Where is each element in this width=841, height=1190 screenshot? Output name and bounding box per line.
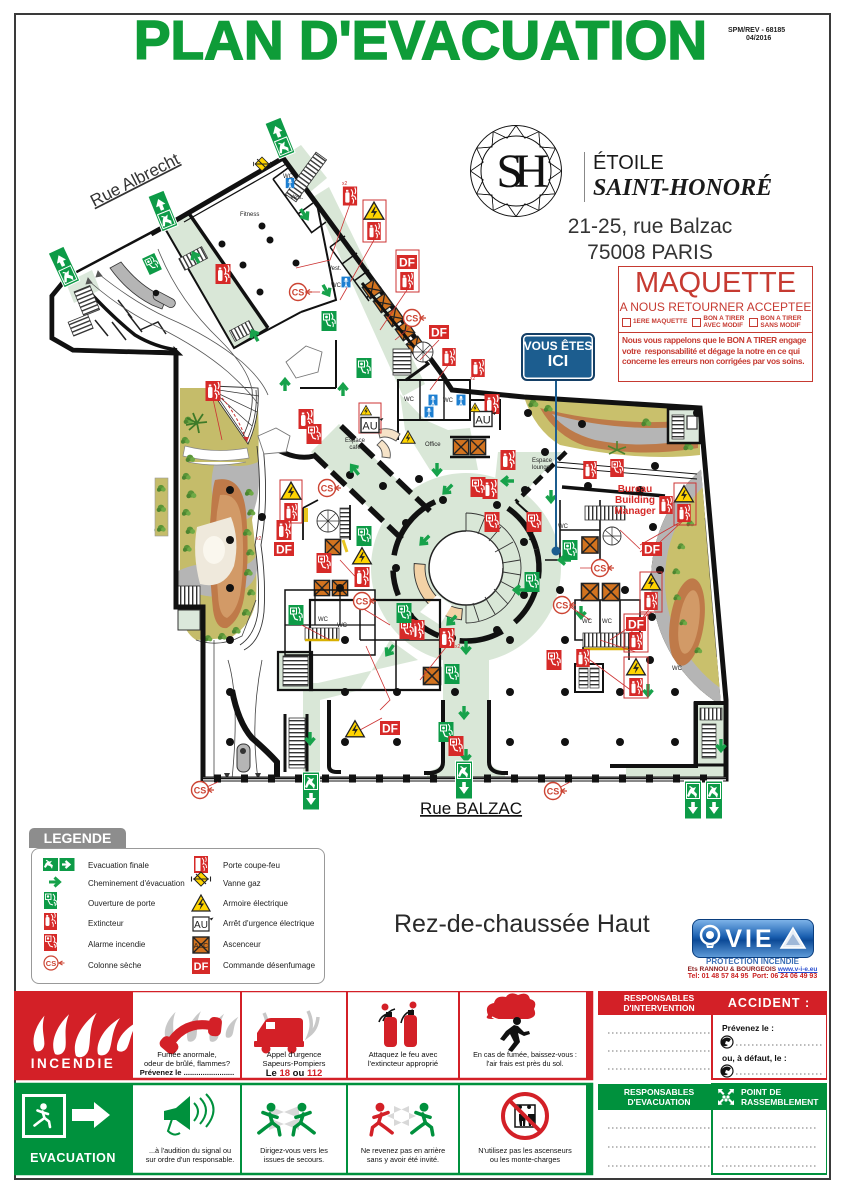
svg-text:WC: WC <box>337 623 348 629</box>
svg-text:issues de secours.: issues de secours. <box>264 1155 324 1164</box>
svg-text:Commande désenfumage: Commande désenfumage <box>223 961 316 970</box>
svg-text:Rue BALZAC: Rue BALZAC <box>420 799 522 818</box>
svg-text:ou, à défaut, le :: ou, à défaut, le : <box>722 1053 787 1063</box>
svg-text:l'air frais est près du sol.: l'air frais est près du sol. <box>486 1059 563 1068</box>
svg-text:odeur de brûlé, flammes?: odeur de brûlé, flammes? <box>144 1059 230 1068</box>
svg-text:Fumée anormale,: Fumée anormale, <box>157 1050 217 1059</box>
svg-text:D'INTERVENTION: D'INTERVENTION <box>623 1003 694 1013</box>
svg-text:ASC: ASC <box>194 943 208 950</box>
svg-text:DF: DF <box>194 961 209 973</box>
svg-text:Dirigez-vous vers les: Dirigez-vous vers les <box>260 1146 328 1155</box>
svg-text:POINT DE: POINT DE <box>741 1087 781 1097</box>
svg-text:AU: AU <box>194 920 208 931</box>
svg-text:Office: Office <box>425 442 441 448</box>
svg-text:WC: WC <box>672 666 683 672</box>
svg-text:WC: WC <box>404 397 415 403</box>
svg-text:Evacuation finale: Evacuation finale <box>88 861 149 870</box>
svg-text:sur ordre d'un responsable.: sur ordre d'un responsable. <box>146 1155 235 1164</box>
svg-text:l'extincteur approprié: l'extincteur approprié <box>368 1059 438 1068</box>
svg-text:Espace: Espace <box>532 458 553 464</box>
svg-text:Building: Building <box>615 495 655 506</box>
svg-text:INCENDIE: INCENDIE <box>31 1056 116 1071</box>
svg-text:WC: WC <box>582 619 593 625</box>
svg-text:Appel d'urgence: Appel d'urgence <box>267 1050 322 1059</box>
svg-text:Colonne sèche: Colonne sèche <box>88 961 142 970</box>
svg-text:Prévenez le ..................: Prévenez le ........................ <box>140 1068 235 1077</box>
svg-text:Fitness: Fitness <box>240 212 259 218</box>
svg-text:WC: WC <box>331 283 342 289</box>
svg-text:CS: CS <box>46 959 56 968</box>
svg-text:D'EVACUATION: D'EVACUATION <box>627 1097 690 1107</box>
svg-text:Arrêt d'urgence électrique: Arrêt d'urgence électrique <box>223 919 315 928</box>
svg-text:ou les monte-charges: ou les monte-charges <box>490 1155 561 1164</box>
svg-text:Extincteur: Extincteur <box>88 919 124 928</box>
svg-text:WC: WC <box>602 619 613 625</box>
svg-text:Attaquez le feu avec: Attaquez le feu avec <box>369 1050 438 1059</box>
svg-text:Espace: Espace <box>345 438 366 444</box>
svg-text:ACCIDENT :: ACCIDENT : <box>728 996 810 1010</box>
svg-text:café: café <box>349 445 361 451</box>
svg-text:Vest.: Vest. <box>328 266 342 272</box>
svg-text:Alarme incendie: Alarme incendie <box>88 940 146 949</box>
svg-text:Prévenez le :: Prévenez le : <box>722 1023 774 1033</box>
svg-text:RASSEMBLEMENT: RASSEMBLEMENT <box>741 1097 819 1107</box>
svg-text:Cheminement d'évacuation: Cheminement d'évacuation <box>88 879 185 888</box>
svg-text:Sapeurs-Pompiers: Sapeurs-Pompiers <box>263 1059 326 1068</box>
svg-text:En cas de fumée, baissez-vous: En cas de fumée, baissez-vous : <box>473 1050 577 1059</box>
svg-text:Ne revenez pas en arrière: Ne revenez pas en arrière <box>361 1146 445 1155</box>
svg-text:SH: SH <box>496 145 548 198</box>
svg-text:...à l'audition du signal ou: ...à l'audition du signal ou <box>149 1146 231 1155</box>
svg-text:N'utilisez pas les ascenseurs: N'utilisez pas les ascenseurs <box>478 1146 572 1155</box>
svg-text:VIE: VIE <box>725 925 774 953</box>
svg-text:EVACUATION: EVACUATION <box>30 1151 116 1165</box>
svg-text:Ouverture de porte: Ouverture de porte <box>88 899 156 908</box>
svg-text:Porte coupe-feu: Porte coupe-feu <box>223 861 280 870</box>
svg-text:RESPONSABLES: RESPONSABLES <box>624 993 695 1003</box>
svg-text:x2: x2 <box>256 536 262 542</box>
svg-text:WC: WC <box>558 524 569 530</box>
svg-text:WC: WC <box>318 617 329 623</box>
svg-text:Le 18 ou 112: Le 18 ou 112 <box>266 1068 323 1079</box>
svg-text:Bureau: Bureau <box>618 484 652 495</box>
svg-text:x2: x2 <box>342 181 348 187</box>
svg-text:sans y avoir été invité.: sans y avoir été invité. <box>367 1155 439 1164</box>
svg-text:x2: x2 <box>470 376 476 382</box>
svg-text:Ascenceur: Ascenceur <box>223 940 261 949</box>
svg-text:RESPONSABLES: RESPONSABLES <box>624 1087 695 1097</box>
svg-text:Manager: Manager <box>614 506 655 517</box>
svg-text:WC: WC <box>283 174 294 180</box>
svg-text:WC: WC <box>443 398 454 404</box>
svg-text:Armoire électrique: Armoire électrique <box>223 899 288 908</box>
svg-text:lounge: lounge <box>532 465 551 471</box>
svg-text:Vanne gaz: Vanne gaz <box>223 879 261 888</box>
svg-text:x2: x2 <box>455 644 461 650</box>
svg-text:Vest.: Vest. <box>290 195 304 201</box>
